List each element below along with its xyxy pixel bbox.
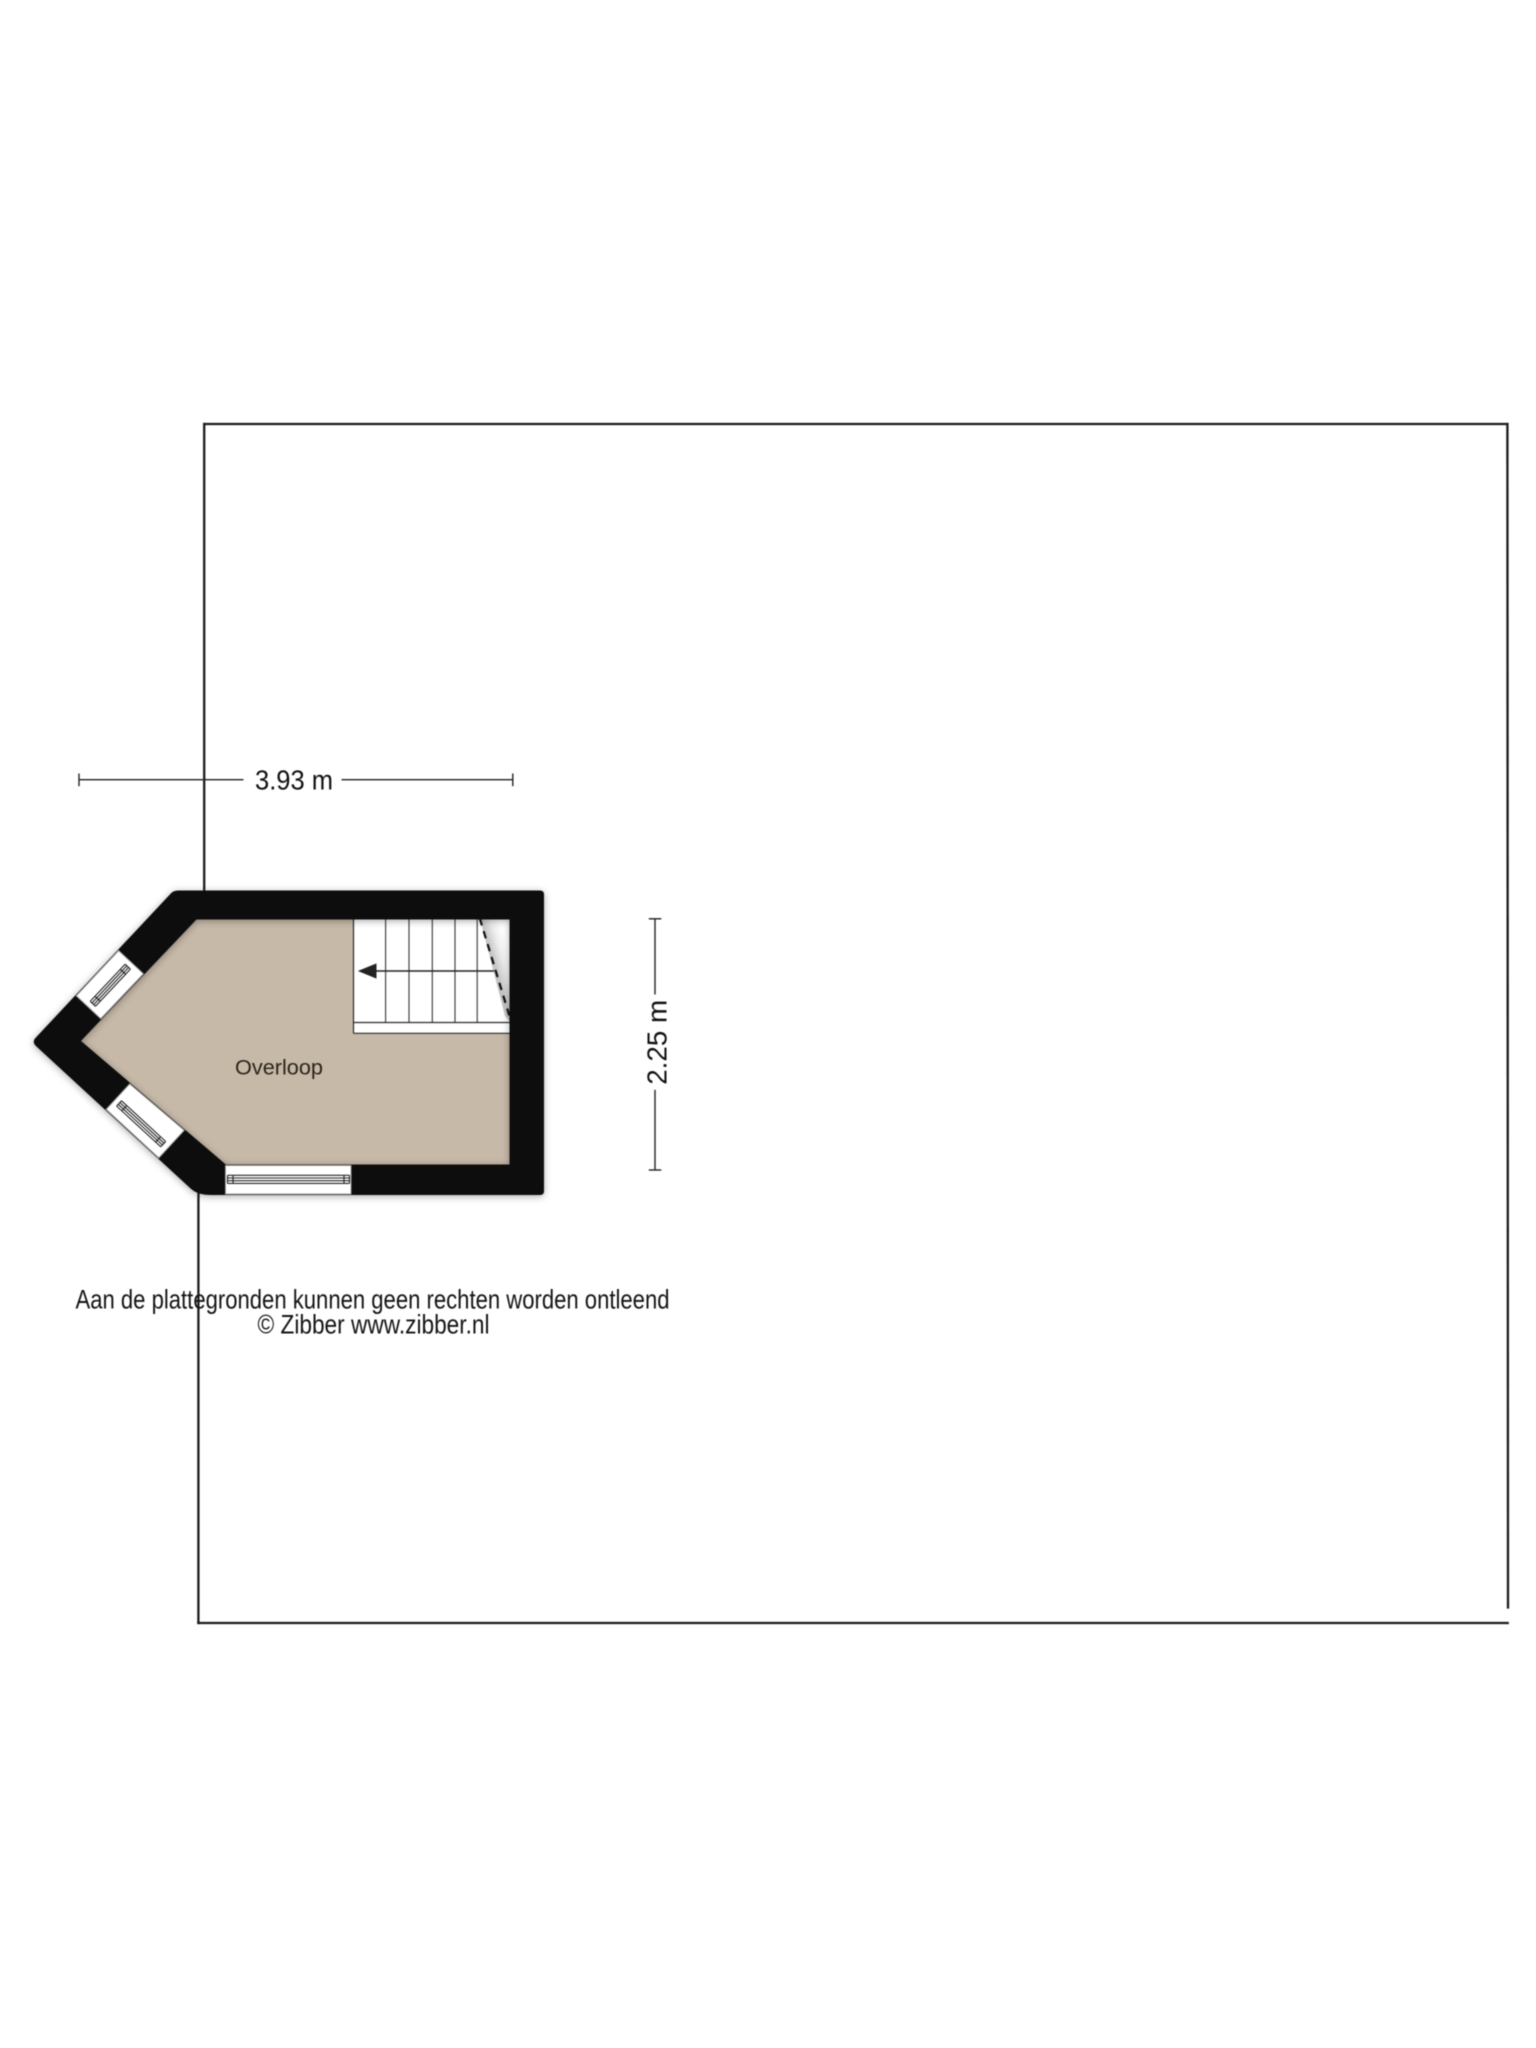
svg-text:2.25 m: 2.25 m [642,1000,673,1085]
svg-text:© Zibber www.zibber.nl: © Zibber www.zibber.nl [258,1310,490,1340]
svg-text:3.93 m: 3.93 m [255,765,333,796]
svg-text:Overloop: Overloop [235,1057,323,1080]
